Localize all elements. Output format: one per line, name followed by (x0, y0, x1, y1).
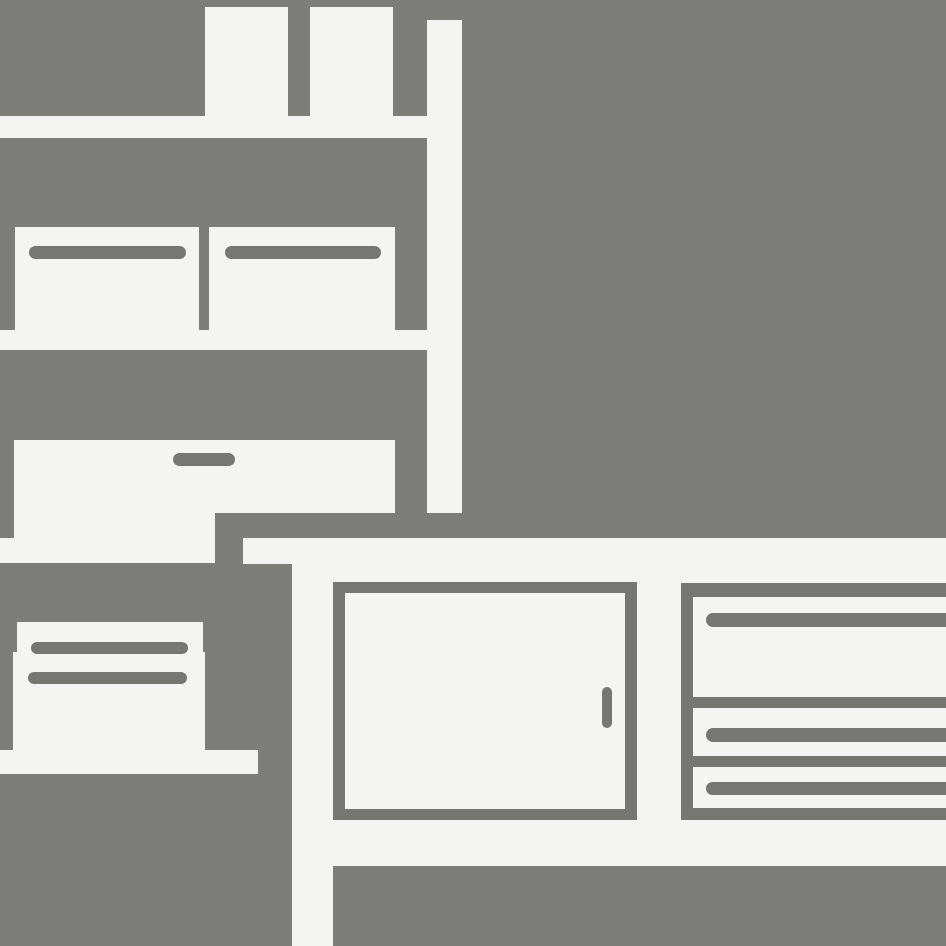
drawer-divider-upper (693, 697, 946, 708)
drawer-handle-top (706, 613, 946, 627)
cabinet-door-panel (345, 593, 625, 809)
drawer-handle-middle (706, 728, 946, 742)
cabinet-door-handle (602, 687, 612, 728)
drawer-handle-bottom (706, 782, 946, 795)
drawer-section-left-border (681, 583, 693, 820)
drawer-divider-lower (693, 756, 946, 767)
sideboard-group (0, 0, 946, 946)
drawer-section-top-border (681, 583, 946, 597)
drawer-section-bottom-border (681, 808, 946, 820)
sideboard-top (243, 538, 946, 564)
furniture-illustration (0, 0, 946, 946)
